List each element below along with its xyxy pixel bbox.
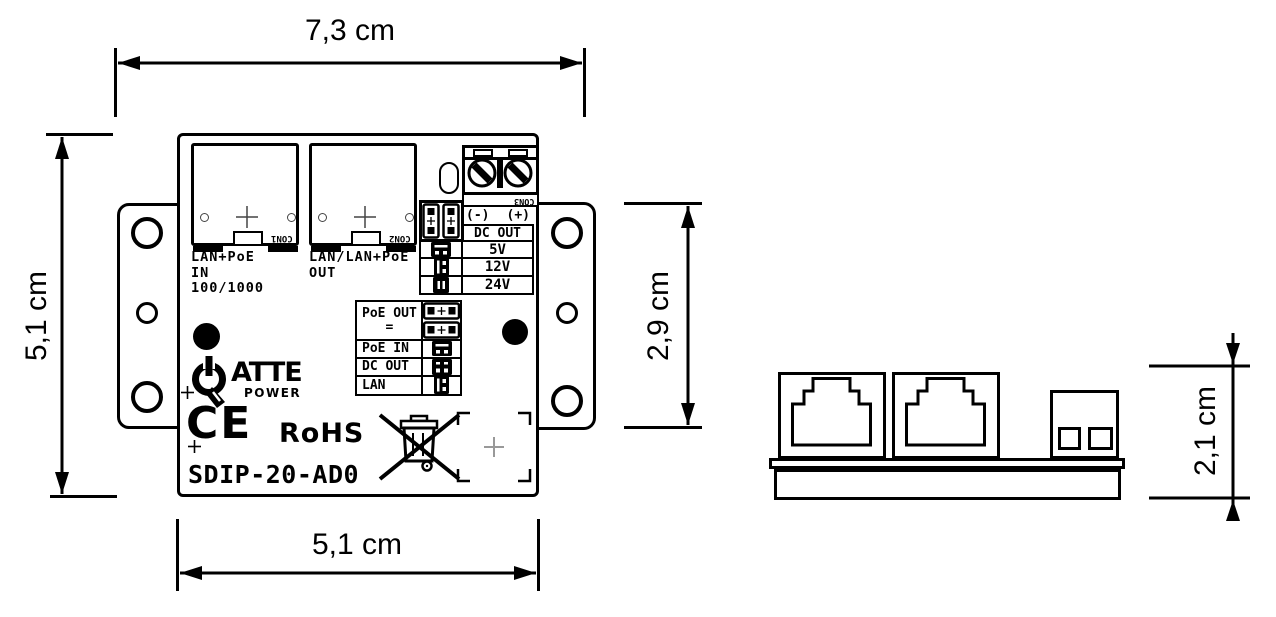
rj45-connector-con2: CON2 xyxy=(309,143,417,246)
mounting-hole xyxy=(556,302,578,324)
pin-mark xyxy=(200,213,209,222)
fiducial-cross xyxy=(188,440,201,453)
dimension-overall-width xyxy=(116,48,585,117)
dim-left-label: 5,1 cm xyxy=(20,231,54,401)
mounting-hole xyxy=(136,302,158,324)
board-slot xyxy=(439,162,459,194)
side-view-pcb-strip xyxy=(769,458,1125,469)
mounting-hole xyxy=(131,381,163,413)
side-view-base xyxy=(774,469,1121,500)
mounting-hole xyxy=(551,217,583,249)
terminal-port xyxy=(1088,427,1113,450)
jumper-cell-lan xyxy=(421,375,462,396)
side-rj45-jack-1 xyxy=(778,372,886,459)
connector-tab xyxy=(351,231,381,246)
terminal-port xyxy=(1058,427,1081,450)
con2-label: LAN/LAN+PoE OUT xyxy=(309,250,409,281)
polarity-neg: (-) xyxy=(466,208,489,224)
weee-icon xyxy=(374,408,464,484)
pin-mark xyxy=(287,213,296,222)
jumper-icon-5v xyxy=(431,242,451,257)
pin-header-cell xyxy=(419,200,464,242)
rj45-connector-con1: CON1 xyxy=(191,143,299,246)
pin-mark xyxy=(318,213,327,222)
rj45-port-icon xyxy=(791,377,872,447)
connector-ref: CON3 xyxy=(514,196,534,206)
jumper-cell-24v xyxy=(419,275,464,295)
jumper-icon-poe-in xyxy=(432,341,452,356)
mounting-hole xyxy=(131,217,163,249)
brand-logo-text: ATTE xyxy=(231,357,302,388)
voltage-cell: 24V xyxy=(461,275,534,295)
side-rj45-jack-2 xyxy=(892,372,1000,459)
mode-row-lan: LAN xyxy=(355,375,424,396)
label-area xyxy=(456,411,532,483)
fiducial-dot xyxy=(502,319,528,345)
dim-bottom-label: 5,1 cm xyxy=(272,528,442,562)
brand-logo-sub: POWER xyxy=(244,386,301,400)
fiducial-cross xyxy=(236,206,258,228)
con3-ref-band: CON3 xyxy=(462,193,539,207)
jumper-icon-24v xyxy=(433,277,449,293)
dim-side-label: 2,1 cm xyxy=(1189,346,1223,516)
screw-terminal-icon xyxy=(465,148,536,192)
dim-top-label: 7,3 cm xyxy=(265,14,435,48)
terminal-block-con3 xyxy=(462,145,539,195)
pin-header-icon xyxy=(422,203,460,239)
connector-ref: CON1 xyxy=(271,233,293,243)
polarity-labels: (-) (+) xyxy=(461,208,535,224)
technical-drawing: 7,3 cm 5,1 cm 2,9 cm 5,1 cm 2,1 cm CON1 … xyxy=(0,0,1276,617)
jumper-icon-12v xyxy=(434,258,449,276)
pin-header-cell-poe xyxy=(421,300,462,341)
rohs-mark: RoHS xyxy=(279,418,364,449)
fiducial-cross xyxy=(354,206,376,228)
jumper-icon-lan xyxy=(434,376,449,394)
front-view-body: CON1 LAN+PoE IN 100/1000 CON2 LAN/LAN+Po… xyxy=(177,133,539,497)
connector-tab xyxy=(233,231,263,246)
mode-row-poe-out: PoE OUT = xyxy=(355,300,424,341)
connector-foot xyxy=(268,246,298,252)
connector-ref: CON2 xyxy=(389,233,411,243)
pin-mark xyxy=(405,213,414,222)
pin-header-icon xyxy=(423,302,460,339)
con1-label: LAN+PoE IN 100/1000 xyxy=(191,250,264,297)
rj45-port-icon xyxy=(905,377,986,447)
dim-bracket-label: 2,9 cm xyxy=(642,231,676,401)
fiducial-dot xyxy=(193,323,220,350)
model-number: SDIP-20-AD0 xyxy=(188,460,359,489)
polarity-pos: (+) xyxy=(507,208,530,224)
dimension-body-height xyxy=(46,135,117,497)
jumper-icon-dc-out xyxy=(432,359,452,375)
mounting-hole xyxy=(551,385,583,417)
side-terminal-block xyxy=(1050,390,1119,459)
